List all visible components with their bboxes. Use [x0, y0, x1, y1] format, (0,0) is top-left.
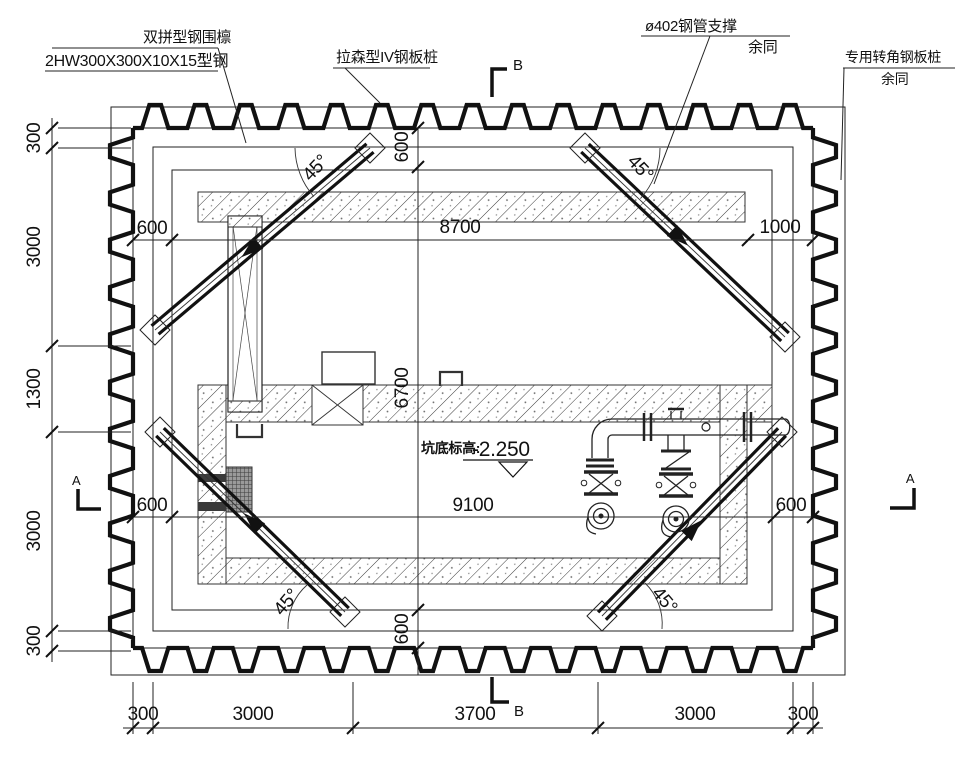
cross-braced-panel — [312, 385, 363, 425]
bracket-on-strip — [440, 372, 462, 386]
dim-left-300-top: 300 — [24, 123, 45, 154]
corner-pile-note: 余同 — [881, 71, 908, 87]
drawing-canvas: 45° 45° 45° 45° — [0, 0, 957, 762]
anchor-plate — [226, 467, 252, 512]
waler-label: 双拼型钢围檩 — [143, 28, 232, 46]
bracket-under-strip — [237, 424, 262, 437]
pump-piping — [581, 409, 790, 537]
corner-brace-top-right: 45° — [570, 133, 800, 352]
pit-elevation-value: -2.250 — [472, 438, 530, 461]
dim-6700: 6700 — [392, 367, 413, 408]
sheet-pile-label: 拉森型IV钢板桩 — [336, 48, 438, 66]
pipe-support-label: ø402钢管支撑 — [645, 18, 737, 35]
dim-left-1300: 1300 — [24, 368, 45, 409]
corner-pile-label: 专用转角钢板桩 — [845, 49, 941, 65]
dim-1000: 1000 — [759, 217, 800, 238]
section-a-left: A — [72, 473, 81, 488]
dim-bottom-300-right: 300 — [788, 704, 819, 725]
dim-bottom-3000-left: 3000 — [232, 704, 273, 725]
section-a-right: A — [906, 471, 915, 486]
dim-600-bottom: 600 — [392, 614, 413, 645]
dim-600-right-mid: 600 — [776, 495, 807, 516]
annotations: 双拼型钢围檩 2HW300X300X10X15型钢 拉森型IV钢板桩 ø402钢… — [45, 18, 955, 184]
dim-left-3000-upper: 3000 — [24, 226, 45, 267]
sheet-pile-right — [813, 128, 836, 648]
pump-left — [587, 503, 614, 534]
section-b-top: B — [513, 57, 523, 74]
pipe-support-note: 余同 — [748, 38, 777, 56]
pit-elevation: 坑底标高: -2.250 — [421, 438, 533, 477]
sheet-pile-top — [133, 105, 813, 128]
section-b-bottom: B — [514, 703, 524, 720]
strip-middle — [198, 385, 772, 422]
angle-label: 45° — [270, 585, 304, 620]
angle-label: 45° — [299, 151, 333, 186]
sheet-pile-left — [110, 128, 133, 648]
dim-left-3000-lower: 3000 — [24, 510, 45, 551]
sheet-pile-bottom — [133, 648, 813, 671]
dim-8700: 8700 — [439, 217, 480, 238]
dim-600-left-top: 600 — [137, 218, 168, 239]
dim-bottom-3700: 3700 — [454, 704, 495, 725]
elevation-triangle-icon — [499, 462, 527, 477]
dim-600-left-mid: 600 — [137, 495, 168, 516]
equipment-outline — [322, 352, 375, 384]
corner-brace-bottom-right: 45° — [587, 417, 797, 631]
dim-chain-left: 300 3000 1300 3000 300 — [24, 118, 131, 662]
plan-drawing: 45° 45° 45° 45° — [0, 0, 957, 762]
dim-9100: 9100 — [452, 495, 493, 516]
connection-bar-lower — [198, 502, 226, 511]
dim-chain-bottom: 300 3000 3700 3000 300 — [123, 682, 823, 734]
pipe-vent — [702, 423, 710, 431]
dim-bottom-3000-right: 3000 — [674, 704, 715, 725]
dim-bottom-300-left: 300 — [128, 704, 159, 725]
waler-spec-label: 2HW300X300X10X15型钢 — [45, 52, 228, 70]
dim-600-top: 600 — [392, 132, 413, 163]
corner-brace-bottom-left: 45° — [145, 417, 360, 629]
angle-label: 45° — [647, 583, 681, 618]
dim-left-300-bottom: 300 — [24, 626, 45, 657]
